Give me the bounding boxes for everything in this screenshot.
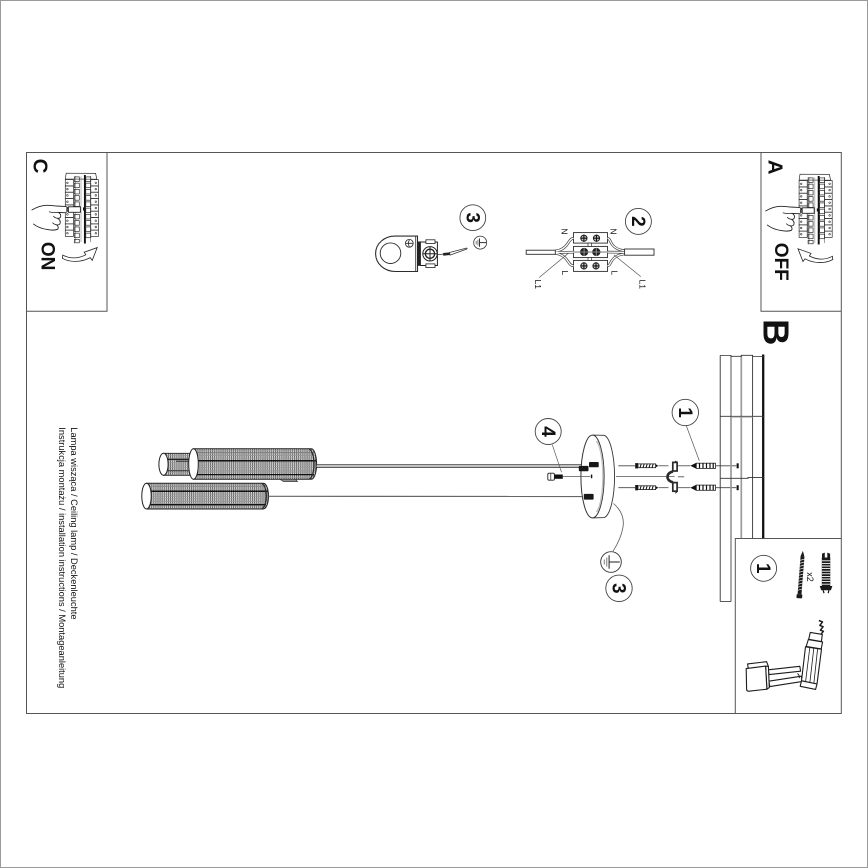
svg-text:Instrukcja montażu / installat: Instrukcja montażu / installation instru…	[57, 427, 67, 688]
svg-text:2: 2	[627, 216, 648, 227]
svg-text:OFF: OFF	[770, 243, 791, 281]
svg-text:N: N	[560, 228, 570, 234]
svg-text:3: 3	[608, 583, 629, 594]
svg-text:N: N	[608, 228, 618, 234]
svg-text:A: A	[763, 160, 786, 175]
svg-text:3: 3	[461, 212, 482, 223]
svg-text:C: C	[28, 159, 51, 174]
svg-text:1: 1	[752, 563, 773, 574]
svg-text:L1: L1	[637, 280, 647, 290]
svg-text:ON: ON	[37, 242, 58, 271]
svg-text:L: L	[610, 270, 620, 275]
svg-text:L1: L1	[533, 280, 543, 290]
svg-text:B: B	[755, 319, 796, 345]
svg-text:x2: x2	[805, 572, 815, 582]
svg-text:Lampa wisząca / Ceiling lamp /: Lampa wisząca / Ceiling lamp / Deckenleu…	[69, 427, 79, 619]
svg-text:L: L	[560, 270, 570, 275]
svg-text:4: 4	[537, 426, 558, 437]
svg-text:1: 1	[674, 407, 695, 418]
